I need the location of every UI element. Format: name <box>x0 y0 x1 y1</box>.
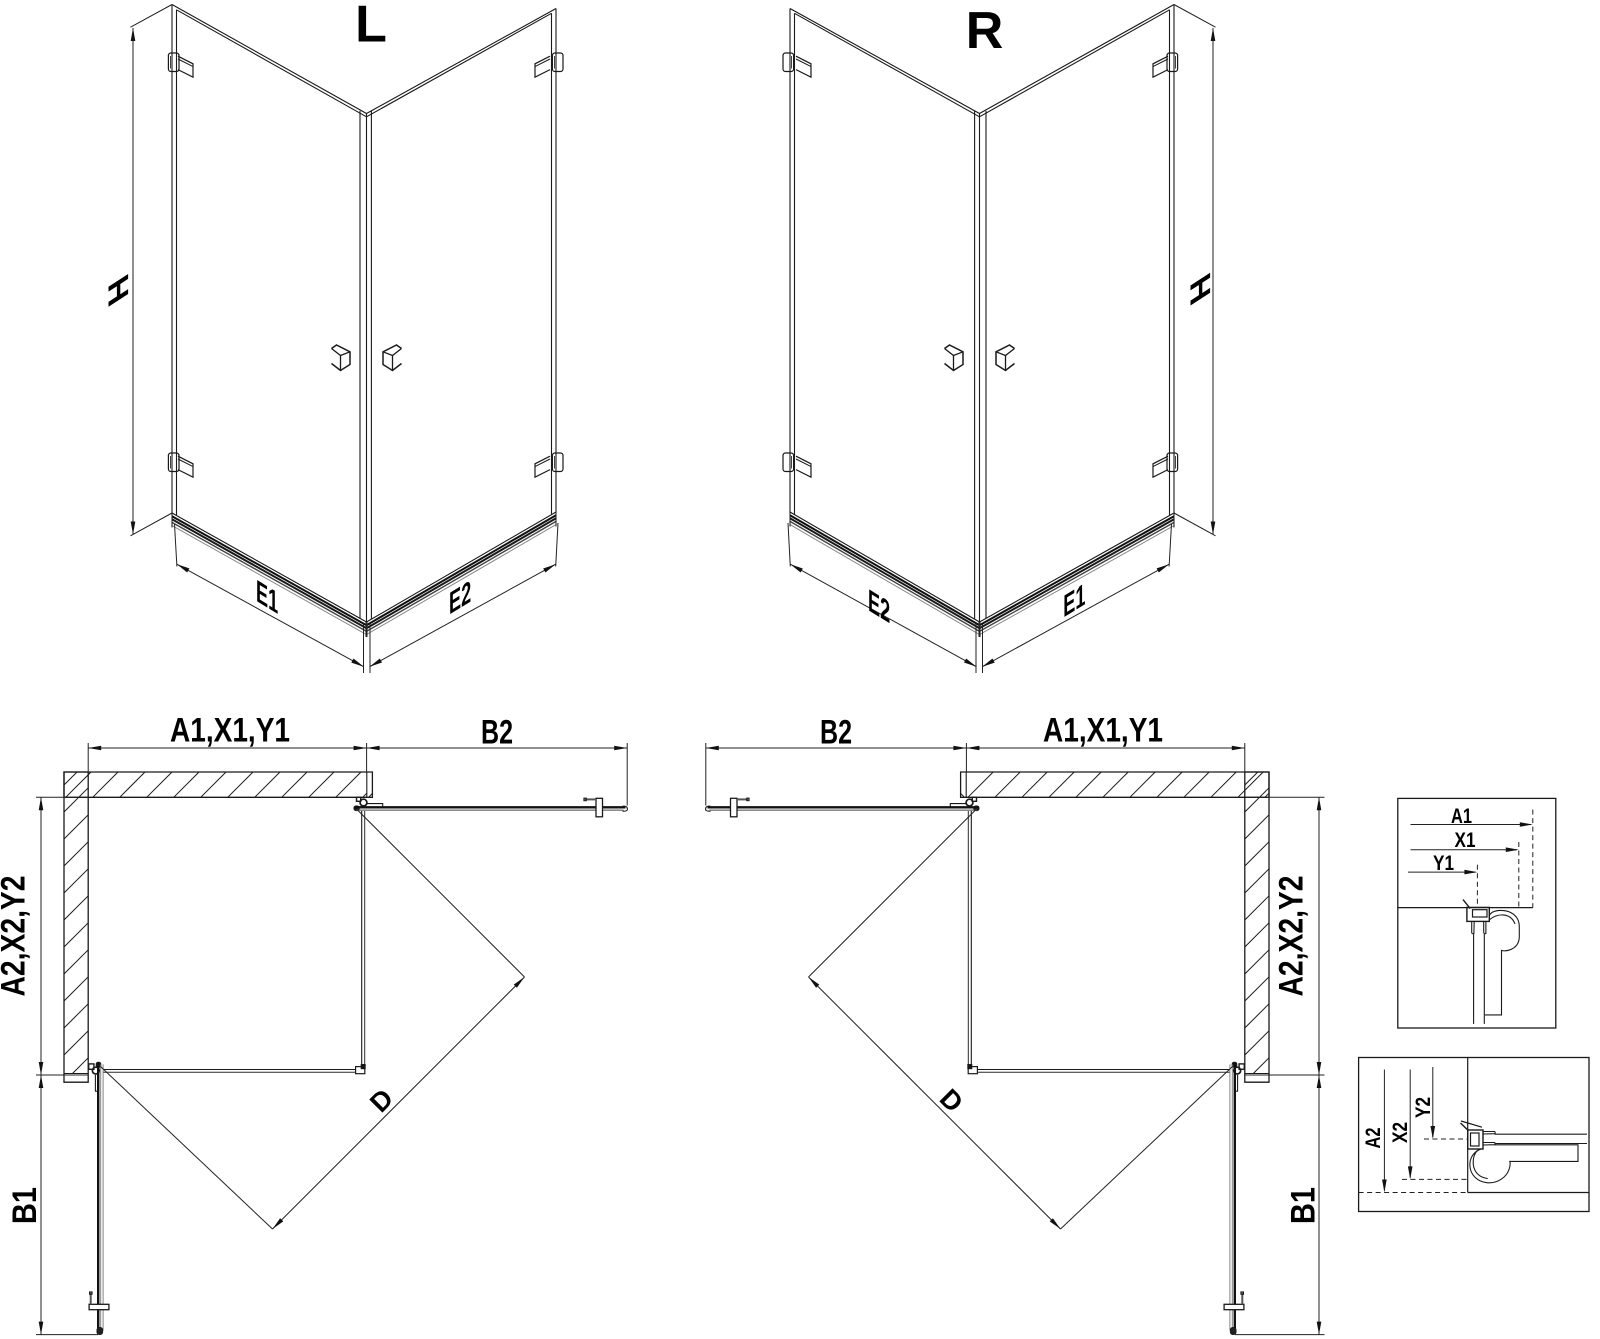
svg-text:B1: B1 <box>1285 1187 1323 1224</box>
svg-text:X1: X1 <box>1455 829 1476 852</box>
svg-text:R: R <box>966 2 1004 60</box>
svg-text:B2: B2 <box>481 714 513 752</box>
svg-text:A2,X2,Y2: A2,X2,Y2 <box>1273 876 1311 997</box>
svg-text:Y1: Y1 <box>1433 852 1454 875</box>
svg-text:A1: A1 <box>1451 805 1472 828</box>
svg-text:A1,X1,Y1: A1,X1,Y1 <box>170 712 290 750</box>
svg-text:B1: B1 <box>6 1187 44 1224</box>
svg-text:B2: B2 <box>820 714 852 752</box>
svg-text:L: L <box>355 0 387 54</box>
svg-text:A2,X2,Y2: A2,X2,Y2 <box>0 876 33 997</box>
svg-text:Y2: Y2 <box>1412 1097 1435 1118</box>
svg-text:A1,X1,Y1: A1,X1,Y1 <box>1043 712 1163 750</box>
svg-text:X2: X2 <box>1389 1122 1412 1143</box>
svg-text:A2: A2 <box>1362 1128 1385 1149</box>
